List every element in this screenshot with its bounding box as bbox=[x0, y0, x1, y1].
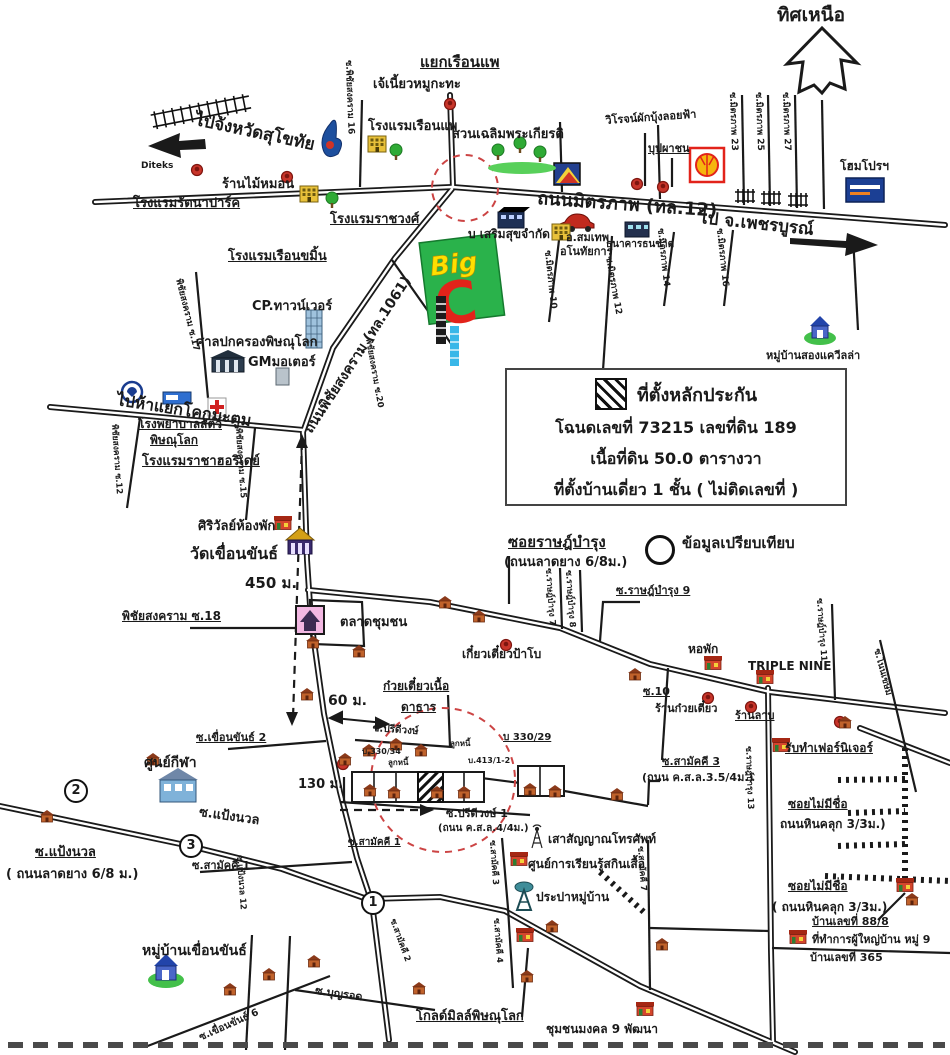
road-name-label: ซ.สามัคคี 1 bbox=[192, 860, 250, 872]
park-lawn-icon bbox=[488, 162, 556, 174]
map-label: อโนทัยการ bbox=[560, 246, 612, 258]
map-label: โฮมโปรฯ bbox=[840, 160, 889, 173]
headman-office-icon bbox=[789, 930, 807, 944]
tree-icon bbox=[534, 146, 546, 162]
road-name-label: ซ.แป้งนวล bbox=[35, 846, 96, 860]
comparison-circle-icon bbox=[645, 535, 675, 565]
road-name-label: ซ.พิชัยสงคราม 16 bbox=[343, 60, 355, 135]
road-name-label: ซ.สามัคคี 3 bbox=[487, 840, 499, 885]
legend-house-line: ที่ตั้งบ้านเดี่ยว 1 ชั้น ( ไม่ติดเลขที่ … bbox=[507, 478, 845, 503]
north-arrow-icon bbox=[787, 28, 857, 93]
map-label: ชุมชนมงคล 9 พัฒนา bbox=[546, 1023, 658, 1036]
road-name-label: ซ.สามัคคี 4 bbox=[491, 918, 503, 963]
property-plots bbox=[352, 766, 564, 802]
map-label: ( ถนนหินคลุก 3/3ม.) bbox=[772, 901, 887, 914]
gm-motor-icon bbox=[276, 368, 289, 385]
road-name-label: ซอยไม่มีชื่อ bbox=[788, 798, 848, 811]
map-label: บ้านเลขที่ 365 bbox=[810, 952, 883, 964]
road-name-label: ซอยไม่มีชื่อ bbox=[788, 880, 848, 893]
road-name-label: ซอยราษฎ์บำรุง bbox=[508, 535, 606, 551]
legend-deed-line: โฉนดเลขที่ 73215 เลขที่ดิน 189 bbox=[507, 416, 845, 441]
map-label: CP.ทาวน์เวอร์ bbox=[252, 300, 332, 314]
legend-comparison-label: ข้อมูลเปรียบเทียบ bbox=[682, 536, 795, 552]
village-icon bbox=[148, 954, 184, 988]
distance-label: 130 ม. bbox=[298, 778, 343, 792]
road-name-label: ซ.สามัคคี 3 bbox=[662, 756, 720, 768]
map-label: โรงแรมเรือนแพ bbox=[368, 120, 457, 134]
road-name-label: ซ.สามัคคี 7 bbox=[635, 846, 647, 891]
road-name-label: ซ.ราษฎ์บำรุง 9 bbox=[616, 585, 690, 597]
map-label: TRIPLE NINE bbox=[748, 660, 831, 673]
community-icon bbox=[636, 1002, 654, 1016]
map-label: Diteks bbox=[141, 162, 173, 171]
map-label: แยกเรือนแพ bbox=[420, 55, 500, 71]
map-label: พิษณุโลก bbox=[150, 434, 198, 447]
shop-dot-icon bbox=[632, 179, 643, 190]
map-label: ประปาหมู่บ้าน bbox=[536, 891, 609, 904]
village-icon bbox=[804, 316, 836, 345]
compass-label: ทิศเหนือ bbox=[777, 6, 845, 26]
gas-flame-core-icon bbox=[326, 141, 334, 149]
map-label: บุปผาชน bbox=[648, 143, 690, 155]
legend-area-line: เนื้อที่ดิน 50.0 ตารางวา bbox=[507, 447, 845, 472]
road-name-label: ซ.มิตรภาพ 27 bbox=[780, 92, 791, 151]
map-label: สวนเฉลิมพระเกียรติ bbox=[452, 128, 564, 142]
distance-label: 60 ม. bbox=[328, 694, 367, 709]
map-label: ที่ทำการผู้ใหญ่บ้าน หมู่ 9 bbox=[812, 934, 930, 946]
map-label: ร้านไม้หมอน bbox=[222, 178, 294, 192]
map-label: ถนนหินคลุก 3/3ม.) bbox=[780, 818, 886, 831]
map-canvas: Big C bbox=[0, 0, 950, 1055]
map-label: ศูนย์การเรียนรู้สกินเสื้อ bbox=[528, 858, 645, 871]
map-label: ( ถนนลาดยาง 6/8 ม.) bbox=[6, 868, 138, 882]
map-label: (ถนน ค.ส.ล.3.5/4ม.) bbox=[642, 772, 754, 784]
map-label: โกลด์มิลล์พิษณุโลก bbox=[416, 1010, 524, 1024]
map-label: ศูนย์กีฬา bbox=[144, 756, 197, 771]
tree-icon bbox=[492, 144, 504, 160]
map-label: บ เสริมสุขจำกัด bbox=[468, 228, 550, 241]
map-label: โรงพยาบาลสัตว์ bbox=[138, 418, 222, 431]
map-label: ลูกหนี้ bbox=[450, 740, 471, 748]
map-label: หอพัก bbox=[688, 643, 718, 656]
map-label: บ้านเลขที่ 88/8 bbox=[812, 916, 889, 928]
road-name-label: ซ.มิตรภาพ 23 bbox=[727, 92, 738, 151]
map-label: เสาสัญญาณโทรศัพท์ bbox=[548, 833, 656, 846]
map-label: โรงแรมรัตนาปาร์ค bbox=[133, 197, 240, 211]
goldmill-icon bbox=[516, 928, 534, 942]
learning-center-icon bbox=[510, 852, 528, 866]
hotel-icon bbox=[368, 136, 386, 152]
antenna-tower-icon bbox=[532, 825, 542, 848]
map-drawing: Big C bbox=[0, 0, 950, 1055]
dormitory-icon bbox=[704, 656, 722, 670]
hatch-legend-icon bbox=[595, 378, 627, 410]
legend-box: ที่ตั้งหลักประกัน โฉนดเลขที่ 73215 เลขที… bbox=[505, 368, 847, 506]
road-name-label: ซ.มิตรภาพ 25 bbox=[753, 92, 764, 151]
map-label: หมู่บ้านเขื่อนขันธ์ bbox=[142, 944, 247, 959]
map-label: (ถนนลาดยาง 6/8ม.) bbox=[504, 556, 627, 570]
road-name-label: พิชัยสงคราม ซ.18 bbox=[122, 610, 221, 623]
map-label: โรงแรมราชวงศ์ bbox=[330, 213, 419, 227]
map-label: อ.สมเทพ bbox=[566, 232, 609, 244]
market-icon bbox=[296, 606, 324, 634]
road-name-label: ซ.สามัคคี 1 bbox=[348, 838, 401, 849]
map-label: ศิริวัลย์ห้องพัก bbox=[198, 520, 275, 534]
road-name-label: ซ.เขื่อนขันธ์ 2 bbox=[196, 732, 266, 744]
hotel-icon bbox=[300, 186, 318, 202]
house-88-icon bbox=[896, 878, 914, 892]
map-label: 450 ม. bbox=[245, 576, 297, 592]
comparison-marker-1: 1 bbox=[361, 891, 385, 915]
map-label: ตลาดชุมชน bbox=[340, 616, 407, 630]
map-label: ศาลปกครองพิษณุโลก bbox=[196, 336, 318, 350]
map-label: หมู่บ้านสองแควีลล่า bbox=[766, 350, 860, 362]
road-name-label: ซ.ปรีดีวงษ์ 1 bbox=[446, 808, 508, 820]
court-building-icon bbox=[210, 350, 246, 372]
temple-icon bbox=[286, 528, 314, 554]
arrow-to-sukhothai-icon bbox=[148, 133, 206, 158]
shop-dot-icon bbox=[192, 165, 203, 176]
map-label: (ถนน ค.ส.ล.4/4ม.) bbox=[438, 824, 529, 835]
map-label: บ 330/29 bbox=[503, 733, 551, 744]
tree-icon bbox=[390, 144, 402, 160]
rainbow-sign-icon bbox=[554, 163, 580, 185]
map-label: บ.330/34 bbox=[362, 748, 401, 756]
map-label: ร้านลาบ bbox=[735, 710, 775, 722]
map-label: รับทำเฟอร์นิเจอร์ bbox=[785, 742, 873, 755]
map-label: ร้านก๋วยเตี๋ยว bbox=[655, 703, 717, 715]
map-label: เจ้เนี้ยวหมูกะทะ bbox=[373, 78, 461, 92]
tree-icon bbox=[326, 192, 338, 208]
map-label: เกี๋ยวเตี๋ยวป้าโบ bbox=[462, 648, 541, 661]
gas-flame-icon bbox=[322, 120, 342, 156]
legend-title: ที่ตั้งหลักประกัน bbox=[637, 380, 757, 409]
map-label: ก๋วยเตี๋ยวเนื้อ bbox=[383, 680, 449, 693]
comparison-marker-3: 3 bbox=[179, 834, 203, 858]
road-name-label: ซ.10 bbox=[643, 686, 670, 698]
sports-center-icon bbox=[158, 768, 198, 802]
map-label: ลูกหนี้ bbox=[388, 759, 409, 767]
water-tower-icon bbox=[515, 882, 533, 910]
shop-dot-icon bbox=[658, 182, 669, 193]
map-label: วัดเขื่อนขันธ์ bbox=[190, 546, 278, 563]
factory-building-icon bbox=[498, 207, 530, 228]
map-label: GMมอเตอร์ bbox=[248, 356, 316, 370]
map-label: บ.413/1-2 bbox=[468, 757, 510, 765]
shell-station-icon bbox=[690, 148, 724, 182]
shop-dot-icon bbox=[445, 99, 456, 110]
homepro-sign-icon bbox=[846, 178, 884, 202]
bank-building-icon bbox=[625, 222, 649, 237]
guesthouse-icon bbox=[274, 516, 292, 530]
map-label: โรงแรมเรือนขมิ้น bbox=[228, 250, 327, 264]
map-label: ดาธาร bbox=[401, 701, 436, 714]
bigc-logo-icon: Big C bbox=[419, 234, 506, 341]
comparison-marker-2: 2 bbox=[64, 779, 88, 803]
